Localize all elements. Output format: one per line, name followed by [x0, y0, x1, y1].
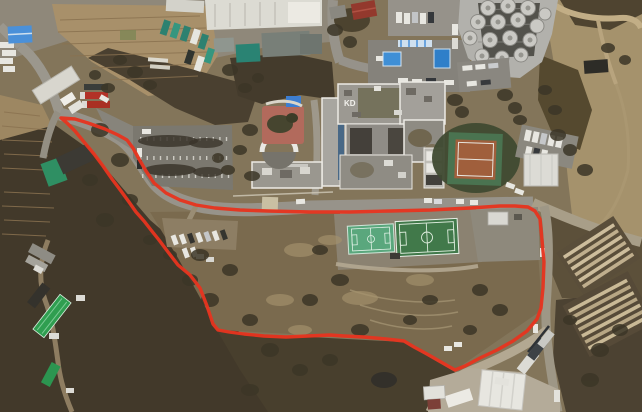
sports-fields	[334, 207, 540, 270]
east-gray-pad	[470, 207, 540, 262]
tanks-south-lot	[457, 58, 511, 92]
aerial-photo: KD	[0, 0, 642, 412]
soccer-field	[395, 218, 459, 256]
tennis-court	[447, 132, 503, 186]
dark-shed	[584, 59, 609, 74]
south-annex-east	[340, 155, 412, 189]
futsal-court	[347, 224, 394, 254]
blue-roof-building	[8, 25, 33, 43]
warehouse	[478, 370, 526, 410]
satellite-image: KD	[0, 0, 642, 412]
white-building-se	[524, 154, 558, 186]
roof-lettering: KD	[344, 99, 356, 108]
